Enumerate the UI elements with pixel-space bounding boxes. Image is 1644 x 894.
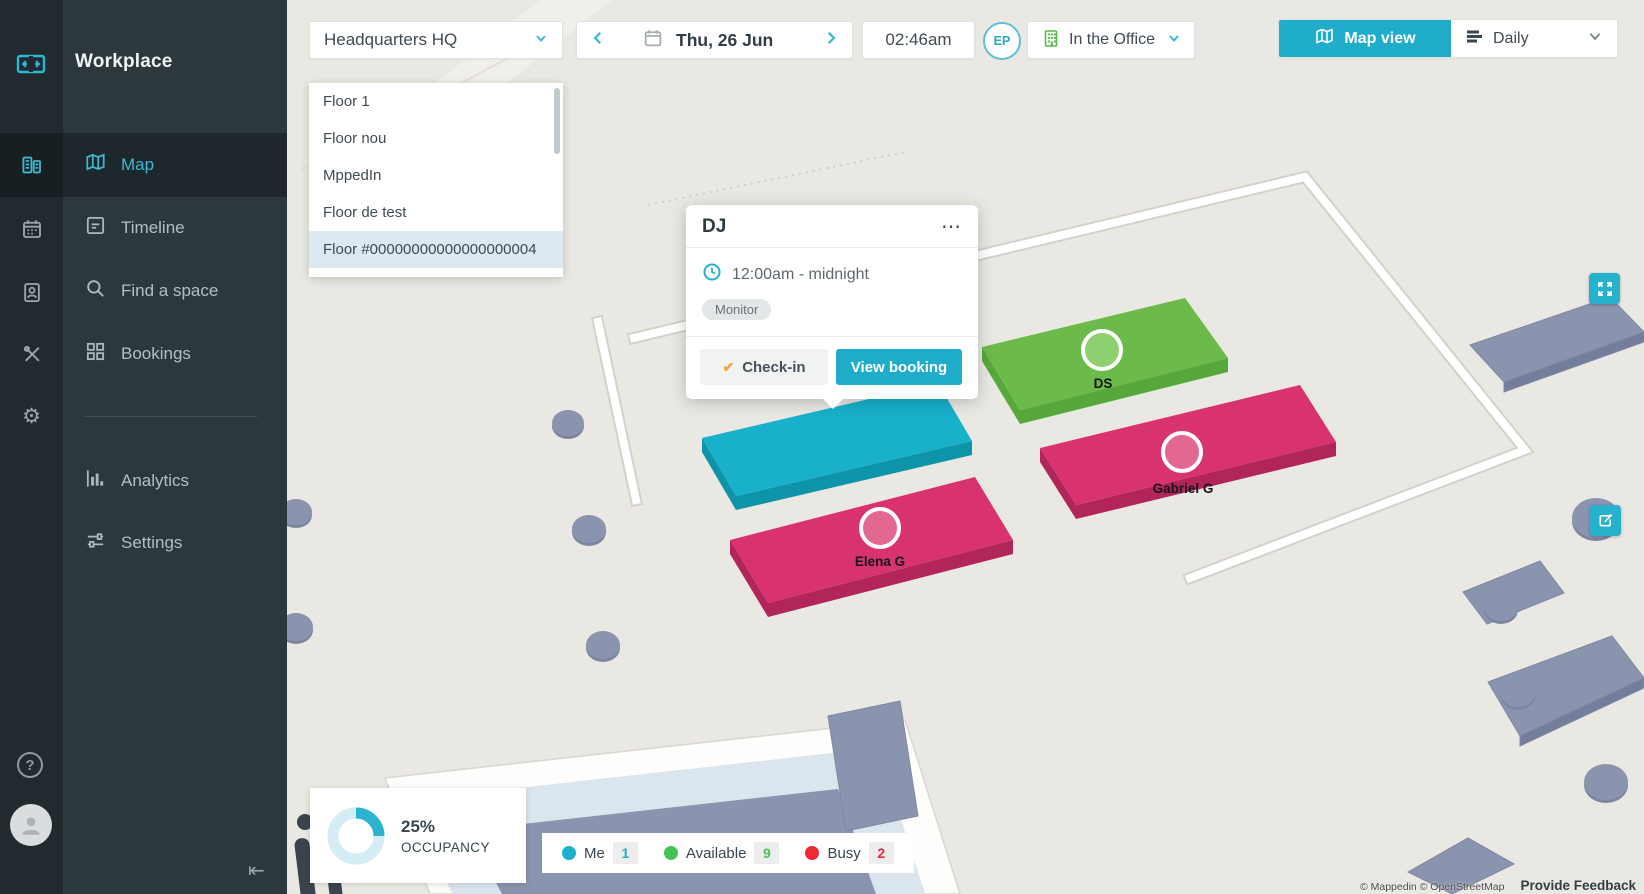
gear-icon[interactable]: ⚙ bbox=[0, 404, 63, 429]
booking-popup-header: DJ ⋯ bbox=[686, 205, 978, 247]
sidebar-item-timeline[interactable]: Timeline bbox=[63, 196, 287, 260]
app-title: Workplace bbox=[75, 51, 173, 73]
sidebar-item-label: Bookings bbox=[121, 344, 191, 364]
booking-popup: DJ ⋯ 12:00am - midnight Monitor ✔ Check-… bbox=[686, 205, 978, 399]
check-icon: ✔ bbox=[722, 359, 734, 376]
booking-time-range: 12:00am - midnight bbox=[732, 266, 869, 284]
sidebar-item-label: Find a space bbox=[121, 281, 218, 301]
booking-popup-footer: ✔ Check-in View booking bbox=[686, 337, 978, 399]
floor-list-scrollbar[interactable] bbox=[554, 88, 560, 154]
popup-pointer bbox=[822, 398, 844, 409]
me-dot-icon bbox=[562, 846, 576, 860]
legend-label: Me bbox=[584, 845, 605, 862]
floor-item[interactable]: Floor nou bbox=[309, 120, 563, 157]
bookings-grid-icon bbox=[84, 340, 107, 368]
office-building-icon bbox=[1041, 28, 1061, 53]
prev-day-button[interactable] bbox=[590, 30, 606, 51]
sidebar-item-label: Analytics bbox=[121, 471, 189, 491]
sidebar-item-analytics[interactable]: Analytics bbox=[63, 449, 287, 513]
copyright-text: © Mappedin © OpenStreetMap bbox=[1360, 881, 1504, 893]
desk-label: DS bbox=[1094, 376, 1113, 391]
analytics-icon bbox=[84, 467, 107, 495]
map-view-icon bbox=[1314, 26, 1335, 52]
time-display[interactable]: 02:46am bbox=[862, 21, 975, 59]
map-view-button[interactable]: Map view bbox=[1279, 20, 1451, 57]
time-label: 02:46am bbox=[885, 30, 951, 50]
help-button[interactable]: ? bbox=[17, 752, 43, 778]
clock-icon bbox=[702, 262, 722, 287]
asset-tag: Monitor bbox=[702, 299, 771, 320]
map-icon bbox=[84, 151, 107, 179]
legend-count: 1 bbox=[613, 842, 638, 864]
floor-item[interactable]: Floor de test bbox=[309, 194, 563, 231]
legend-count: 9 bbox=[754, 842, 779, 864]
fullscreen-button[interactable] bbox=[1589, 273, 1620, 304]
legend-label: Busy bbox=[827, 845, 860, 862]
map-legend: Me 1 Available 9 Busy 2 bbox=[542, 833, 914, 873]
checkin-label: Check-in bbox=[742, 359, 805, 376]
occupancy-percent: 25% bbox=[401, 817, 490, 837]
map-attribution: © Mappedin © OpenStreetMap Provide Feedb… bbox=[1360, 878, 1636, 893]
calendar-icon bbox=[642, 27, 664, 54]
occupancy-donut bbox=[324, 804, 388, 868]
workplace-logo-icon[interactable] bbox=[14, 47, 48, 86]
user-initials-avatar[interactable]: EP bbox=[983, 22, 1021, 60]
user-initials: EP bbox=[994, 34, 1011, 48]
schedule-list-icon bbox=[1465, 27, 1484, 51]
busy-dot-icon bbox=[805, 846, 819, 860]
timeline-icon bbox=[84, 214, 107, 242]
schedule-view-selector[interactable]: Daily bbox=[1451, 20, 1617, 57]
legend-item-me: Me 1 bbox=[562, 842, 638, 864]
next-day-button[interactable] bbox=[823, 30, 839, 51]
view-booking-button[interactable]: View booking bbox=[836, 349, 962, 385]
sliders-icon bbox=[84, 529, 107, 557]
legend-count: 2 bbox=[869, 842, 894, 864]
sidebar-item-bookings[interactable]: Bookings bbox=[63, 322, 287, 386]
sidebar-item-map[interactable]: Map bbox=[63, 133, 287, 197]
desk-label: Gabriel G bbox=[1153, 481, 1214, 496]
occupancy-label: OCCUPANCY bbox=[401, 840, 490, 855]
collapse-sidebar-button[interactable]: ⇤ bbox=[248, 858, 265, 883]
map-view-label: Map view bbox=[1344, 30, 1415, 48]
desks-icon[interactable] bbox=[0, 153, 63, 182]
occupancy-card: 25% OCCUPANCY bbox=[310, 788, 526, 883]
presence-status-label: In the Office bbox=[1069, 31, 1155, 49]
sidebar-item-find-a-space[interactable]: Find a space bbox=[63, 259, 287, 323]
checkin-button[interactable]: ✔ Check-in bbox=[700, 349, 828, 385]
person-badge-icon[interactable] bbox=[0, 280, 63, 309]
legend-label: Available bbox=[686, 845, 747, 862]
chevron-down-icon bbox=[1167, 31, 1181, 50]
workplace-app: Elena G DS Gabriel G bbox=[0, 0, 1644, 894]
search-icon bbox=[84, 277, 107, 305]
user-avatar[interactable] bbox=[10, 804, 52, 846]
view-toggle: Map view Daily bbox=[1278, 19, 1618, 58]
booking-popup-body: 12:00am - midnight Monitor bbox=[686, 247, 978, 337]
floor-list: Floor 1 Floor nou MppedIn Floor de test … bbox=[309, 83, 563, 277]
legend-item-busy: Busy 2 bbox=[805, 842, 893, 864]
floor-item-selected[interactable]: Floor #00000000000000000004 bbox=[309, 231, 563, 268]
presence-selector[interactable]: In the Office bbox=[1027, 21, 1195, 59]
chevron-down-icon bbox=[534, 30, 548, 50]
building-selector[interactable]: Headquarters HQ bbox=[309, 21, 563, 59]
sidebar-item-label: Settings bbox=[121, 533, 182, 553]
booking-title: DJ bbox=[702, 216, 726, 238]
schedule-view-label: Daily bbox=[1493, 30, 1529, 48]
desk-marker bbox=[861, 509, 899, 547]
building-selector-label: Headquarters HQ bbox=[324, 30, 457, 50]
edit-map-button[interactable] bbox=[1590, 505, 1621, 536]
sidebar-item-label: Map bbox=[121, 155, 154, 175]
tools-icon[interactable] bbox=[0, 342, 63, 371]
date-navigator: Thu, 26 Jun bbox=[576, 21, 853, 59]
provide-feedback-link[interactable]: Provide Feedback bbox=[1520, 878, 1636, 893]
more-options-button[interactable]: ⋯ bbox=[941, 222, 962, 232]
chevron-down-icon bbox=[1587, 28, 1603, 49]
sidebar-item-settings[interactable]: Settings bbox=[63, 511, 287, 575]
sidebar-item-label: Timeline bbox=[121, 218, 185, 238]
desk-marker bbox=[1083, 331, 1121, 369]
desk-label: Elena G bbox=[855, 554, 905, 569]
sidebar-divider bbox=[85, 416, 257, 417]
floor-item[interactable]: MppedIn bbox=[309, 157, 563, 194]
desk-marker bbox=[1163, 433, 1201, 471]
date-label: Thu, 26 Jun bbox=[676, 30, 773, 51]
calendar-rail-icon[interactable] bbox=[0, 217, 63, 246]
legend-item-available: Available 9 bbox=[664, 842, 780, 864]
available-dot-icon bbox=[664, 846, 678, 860]
floor-item[interactable]: Floor 1 bbox=[309, 83, 563, 120]
